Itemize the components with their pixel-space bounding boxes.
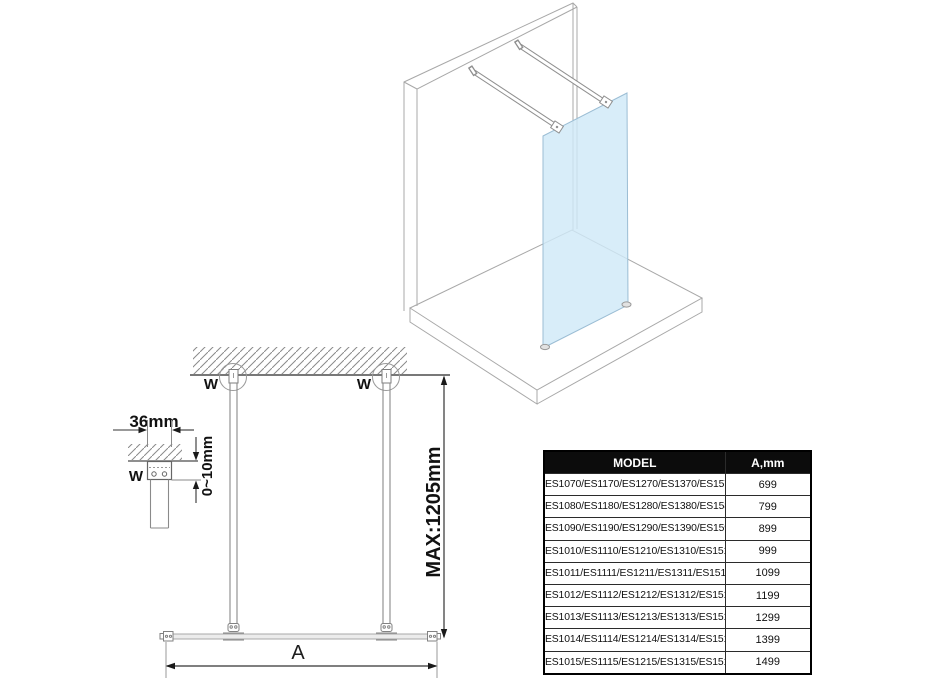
support-bar-right-2d — [383, 383, 390, 624]
glass-foot-right — [622, 302, 631, 307]
glass-foot-left — [541, 344, 550, 349]
wall-mount-label-left: W — [204, 376, 219, 393]
amm-cell: 1199 — [725, 584, 811, 606]
model-cell: ES1015/ES1115/ES1215/ES1315/ES1515 — [544, 651, 725, 674]
model-cell: ES1011/ES1111/ES1211/ES1311/ES1511 — [544, 562, 725, 584]
amm-cell: 999 — [725, 540, 811, 562]
model-cell: ES1012/ES1112/ES1212/ES1312/ES1512 — [544, 584, 725, 606]
table-row: ES1010/ES1110/ES1210/ES1310/ES1510 999 — [544, 540, 811, 562]
table-row: ES1070/ES1170/ES1270/ES1370/ES1570 699 — [544, 474, 811, 496]
table-row: ES1012/ES1112/ES1212/ES1312/ES1512 1199 — [544, 584, 811, 606]
table-row: ES1015/ES1115/ES1215/ES1315/ES1515 1499 — [544, 651, 811, 674]
amm-cell: 1499 — [725, 651, 811, 674]
glass-end-clamp-right — [428, 632, 441, 642]
max-length-dimension: MAX:1205mm — [423, 376, 447, 639]
detail-wall-hatch — [128, 444, 182, 460]
detail-bar — [151, 480, 169, 529]
glass-edge-2d — [164, 634, 437, 639]
col-header-amm: A,mm — [725, 451, 811, 474]
table-row: ES1013/ES1113/ES1213/ES1313/ES1513 1299 — [544, 607, 811, 629]
model-cell: ES1014/ES1114/ES1214/ES1314/ES1514 — [544, 629, 725, 651]
max-length-label: MAX:1205mm — [423, 446, 445, 577]
glass-width-dimension: A — [166, 642, 438, 678]
support-bar-back — [516, 41, 612, 109]
col-header-model: MODEL — [544, 451, 725, 474]
detail-bracket — [148, 462, 172, 480]
wall-mount-label-detail: W — [129, 468, 144, 485]
support-bar-front — [470, 67, 563, 134]
model-cell: ES1080/ES1180/ES1280/ES1380/ES1580 — [544, 496, 725, 518]
amm-cell: 699 — [725, 474, 811, 496]
amm-cell: 1399 — [725, 629, 811, 651]
amm-cell: 1299 — [725, 607, 811, 629]
installation-diagram: W W — [160, 347, 450, 678]
adjust-range-label: 0~10mm — [199, 436, 216, 496]
model-cell: ES1070/ES1170/ES1270/ES1370/ES1570 — [544, 474, 725, 496]
spec-table-header-row: MODEL A,mm — [544, 451, 811, 474]
glass-end-clamp-left — [160, 632, 173, 642]
glass-width-label: A — [291, 642, 305, 664]
table-row: ES1014/ES1114/ES1214/ES1314/ES1514 1399 — [544, 629, 811, 651]
model-cell: ES1090/ES1190/ES1290/ES1390/ES1590 — [544, 518, 725, 540]
table-row: ES1011/ES1111/ES1211/ES1311/ES1511 1099 — [544, 562, 811, 584]
spec-table: MODEL A,mm ES1070/ES1170/ES1270/ES1370/E… — [543, 450, 810, 675]
isometric-view — [404, 3, 702, 404]
table-row: ES1080/ES1180/ES1280/ES1380/ES1580 799 — [544, 496, 811, 518]
wall-mount-label-right: W — [357, 376, 372, 393]
amm-cell: 799 — [725, 496, 811, 518]
table-row: ES1090/ES1190/ES1290/ES1390/ES1590 899 — [544, 518, 811, 540]
model-cell: ES1010/ES1110/ES1210/ES1310/ES1510 — [544, 540, 725, 562]
detail-inset: 36mm W — [113, 412, 216, 528]
amm-cell: 899 — [725, 518, 811, 540]
page: W W — [0, 0, 928, 686]
support-bar-left-2d — [230, 383, 237, 624]
model-cell: ES1013/ES1113/ES1213/ES1313/ES1513 — [544, 607, 725, 629]
amm-cell: 1099 — [725, 562, 811, 584]
